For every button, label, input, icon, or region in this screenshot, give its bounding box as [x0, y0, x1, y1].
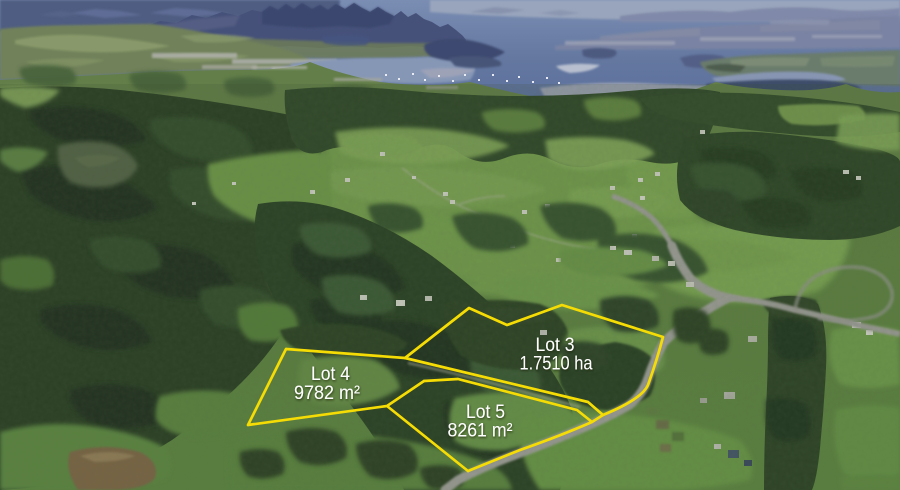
svg-text:8261 m²: 8261 m²	[448, 420, 513, 442]
svg-text:1.7510 ha: 1.7510 ha	[520, 353, 593, 375]
svg-text:9782 m²: 9782 m²	[294, 382, 360, 404]
